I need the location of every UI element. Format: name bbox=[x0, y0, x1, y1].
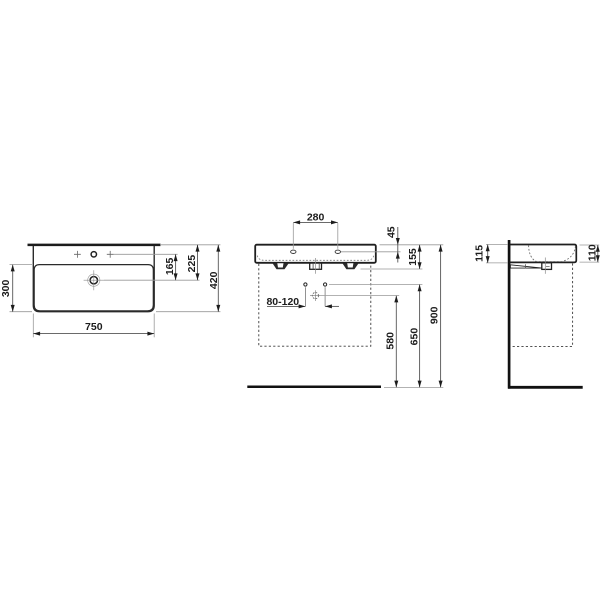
svg-text:80-120: 80-120 bbox=[266, 296, 299, 308]
svg-text:165: 165 bbox=[164, 257, 176, 275]
svg-text:225: 225 bbox=[186, 255, 198, 273]
svg-text:115: 115 bbox=[474, 245, 486, 262]
svg-text:280: 280 bbox=[307, 211, 325, 223]
svg-text:155: 155 bbox=[407, 248, 419, 266]
svg-text:580: 580 bbox=[385, 332, 397, 350]
svg-text:110: 110 bbox=[586, 244, 598, 261]
svg-text:300: 300 bbox=[0, 279, 12, 297]
svg-text:420: 420 bbox=[208, 271, 220, 289]
svg-text:750: 750 bbox=[85, 321, 103, 333]
svg-text:650: 650 bbox=[408, 328, 420, 346]
svg-text:900: 900 bbox=[429, 306, 441, 324]
svg-text:45: 45 bbox=[385, 226, 397, 238]
